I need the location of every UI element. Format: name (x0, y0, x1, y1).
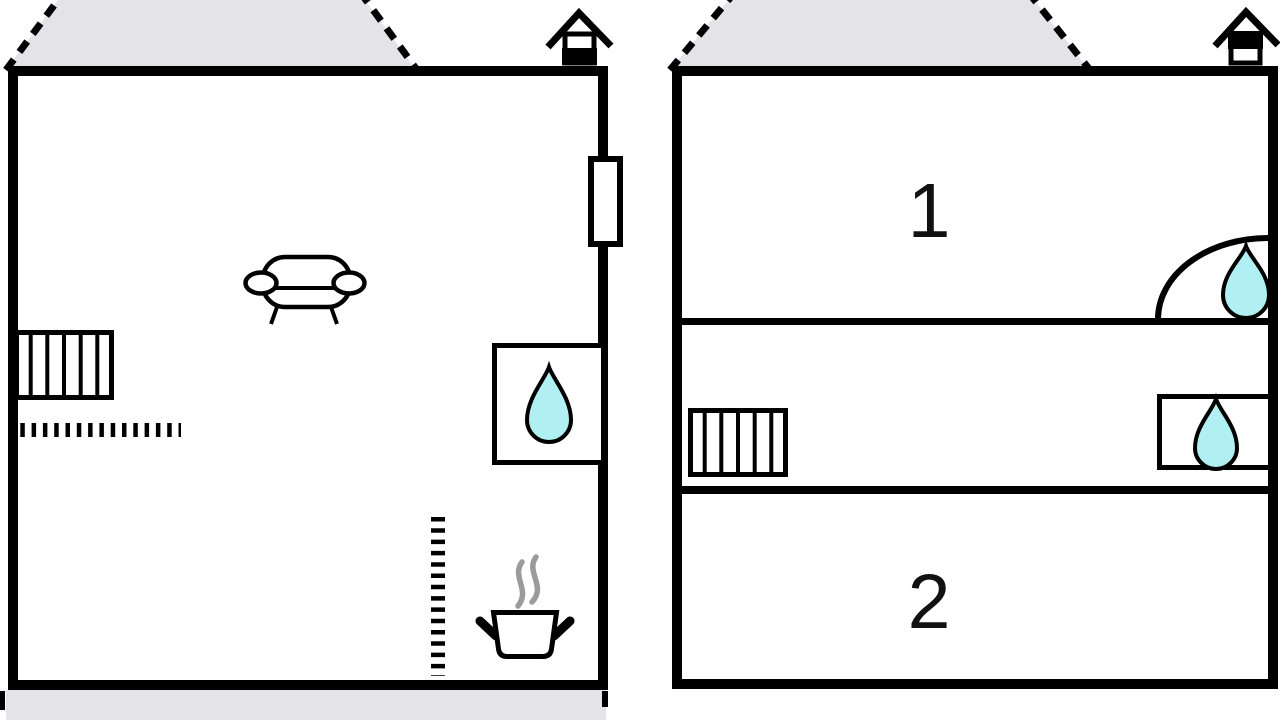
interior-wall-room1 (680, 318, 1270, 325)
outer-walls-upper-floor (677, 71, 1273, 684)
floorplan-ground-floor (0, 0, 620, 720)
sink-box-ground-floor (495, 346, 604, 463)
floor-plan-canvas: 1 2 (0, 0, 1280, 720)
room-1-label: 1 (908, 168, 951, 254)
sofa-armrest-right (334, 273, 365, 294)
sofa-armrest-left (246, 273, 277, 294)
storey-indicator-ground-floor (548, 13, 611, 65)
radiator-icon-ground-floor (17, 333, 112, 398)
indicator-upper-level-filled (1228, 31, 1263, 49)
pot-body (494, 613, 557, 657)
room-2-label: 2 (908, 559, 951, 645)
roof-dash-tick-right (602, 691, 608, 707)
window (591, 159, 620, 244)
storey-indicator-upper-floor (1215, 12, 1278, 63)
roof-dash-tick-left (0, 691, 5, 710)
radiator-icon-upper-floor (691, 411, 786, 475)
interior-wall-room2 (680, 486, 1270, 494)
roof-shade-top-left-plan (8, 0, 414, 67)
roof-shade-bottom (6, 690, 606, 720)
sink-box-upper-floor (1160, 397, 1271, 470)
floorplan-upper-floor: 1 2 (670, 0, 1278, 684)
indicator-lower-level-filled (562, 48, 597, 65)
roof-shade-top-right-plan (672, 0, 1087, 67)
